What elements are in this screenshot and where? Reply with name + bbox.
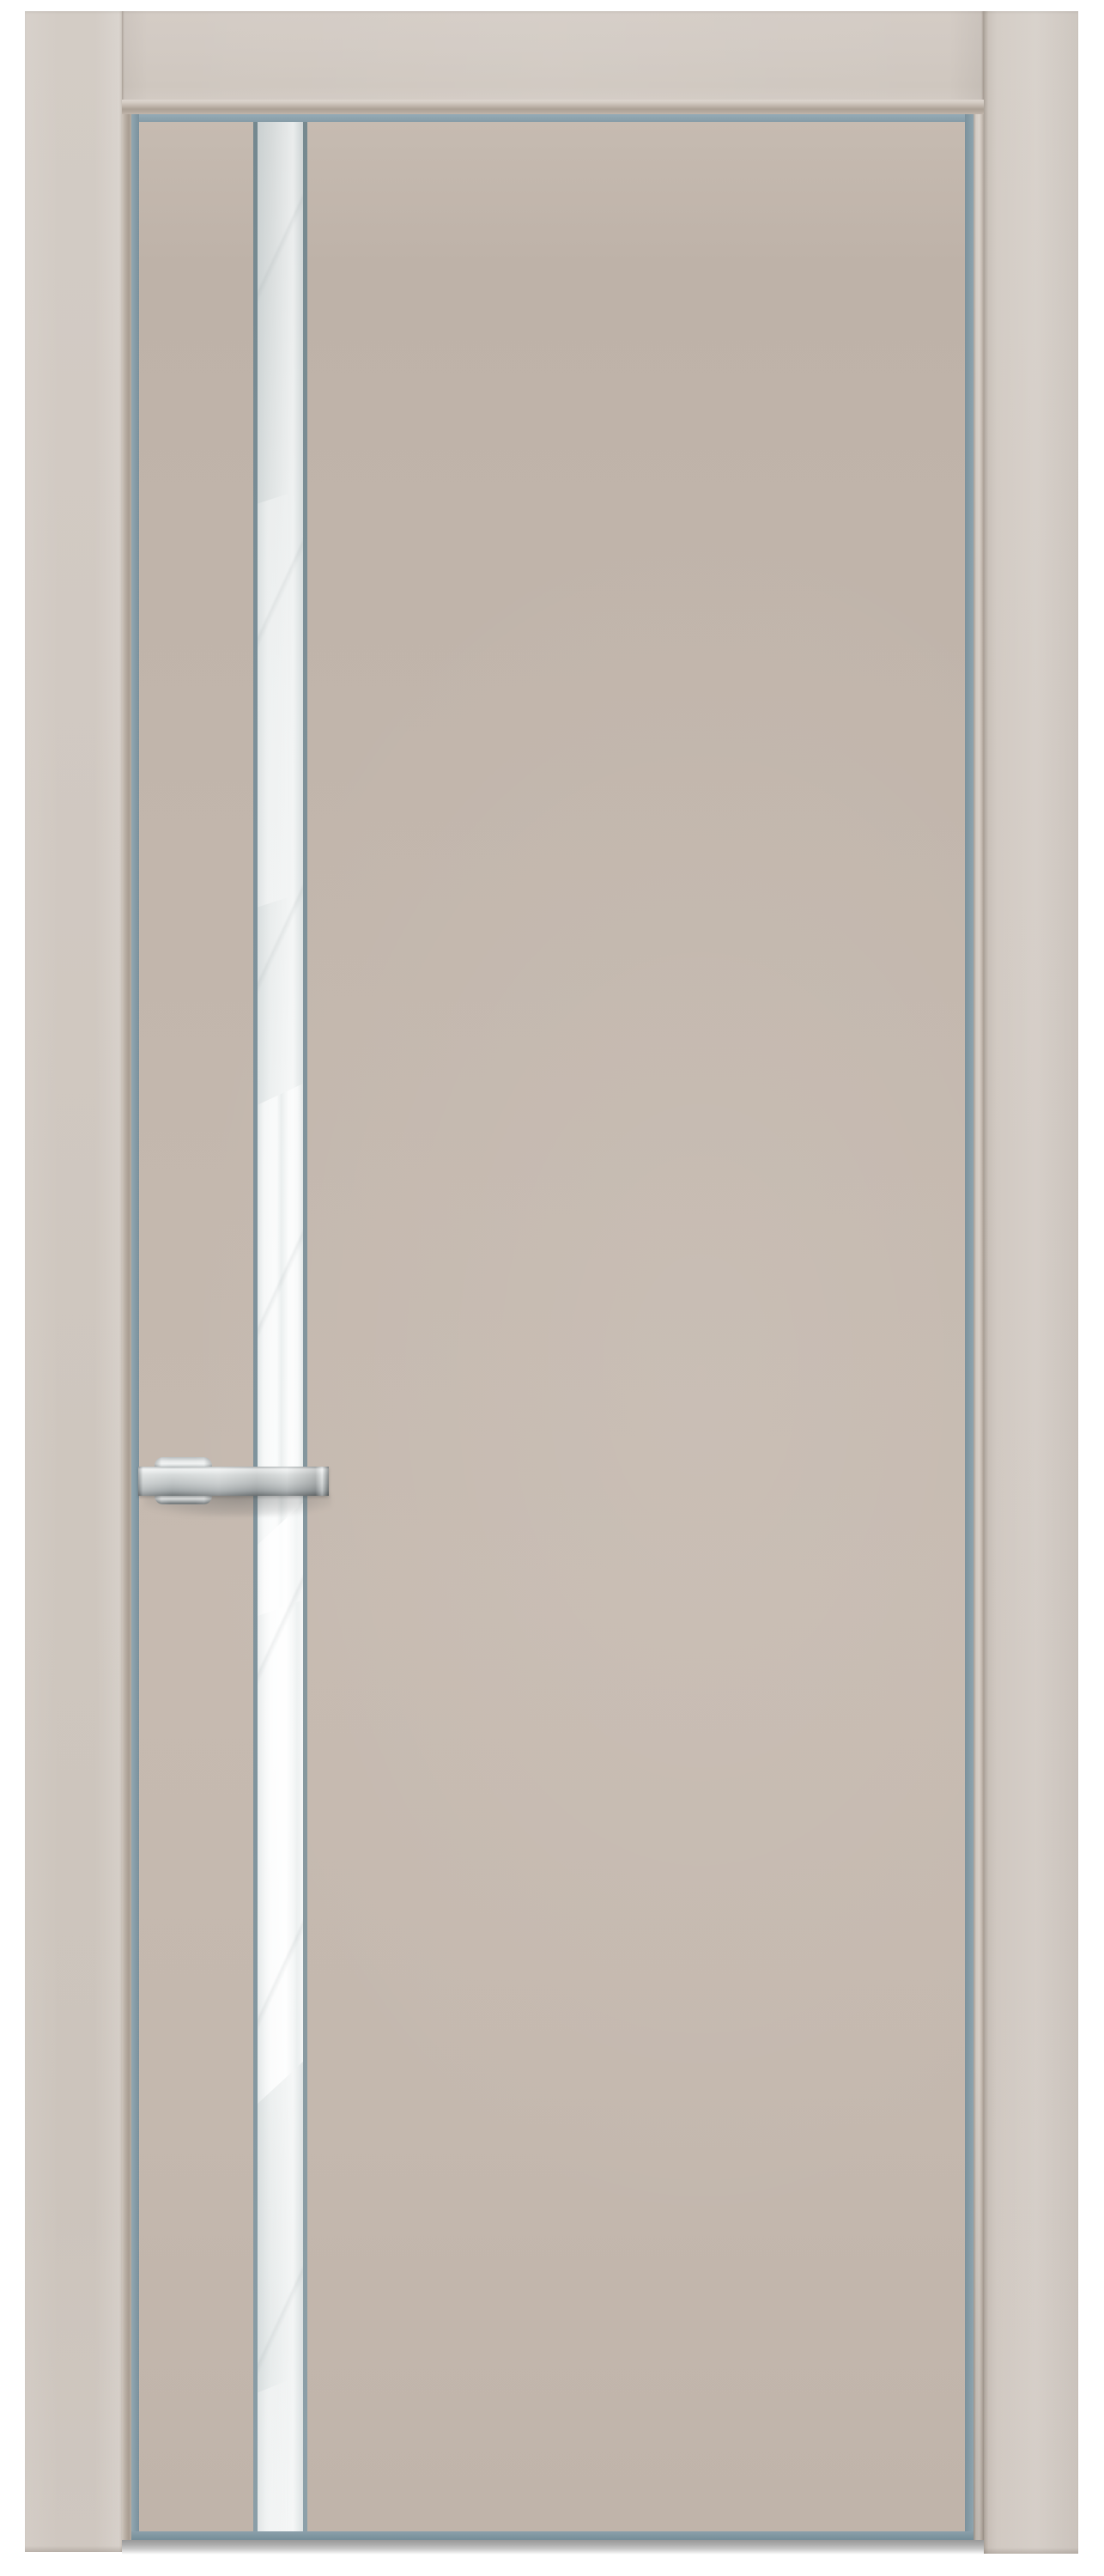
- glass-streaks: [258, 122, 303, 2531]
- door-handle-bar: [138, 1467, 329, 1496]
- aluminum-edge-top: [131, 114, 974, 122]
- aluminum-edge-bottom: [131, 2531, 974, 2540]
- door-rebate-shadow-left: [122, 114, 131, 2540]
- door-leaf-right-bevel: [974, 114, 984, 2540]
- aluminum-edge-left: [131, 114, 139, 2540]
- aluminum-edge-right: [965, 114, 974, 2540]
- floor-shadow: [122, 2540, 984, 2555]
- glass-stripe: [258, 122, 303, 2531]
- door-casing-left-leg: [25, 11, 122, 2552]
- door-casing-header: [122, 11, 984, 100]
- door-photo-stage: [0, 0, 1104, 2576]
- door-casing-right-leg: [984, 11, 1078, 2554]
- glass-bead-right: [303, 122, 307, 2531]
- door-casing-header-molding: [122, 100, 984, 114]
